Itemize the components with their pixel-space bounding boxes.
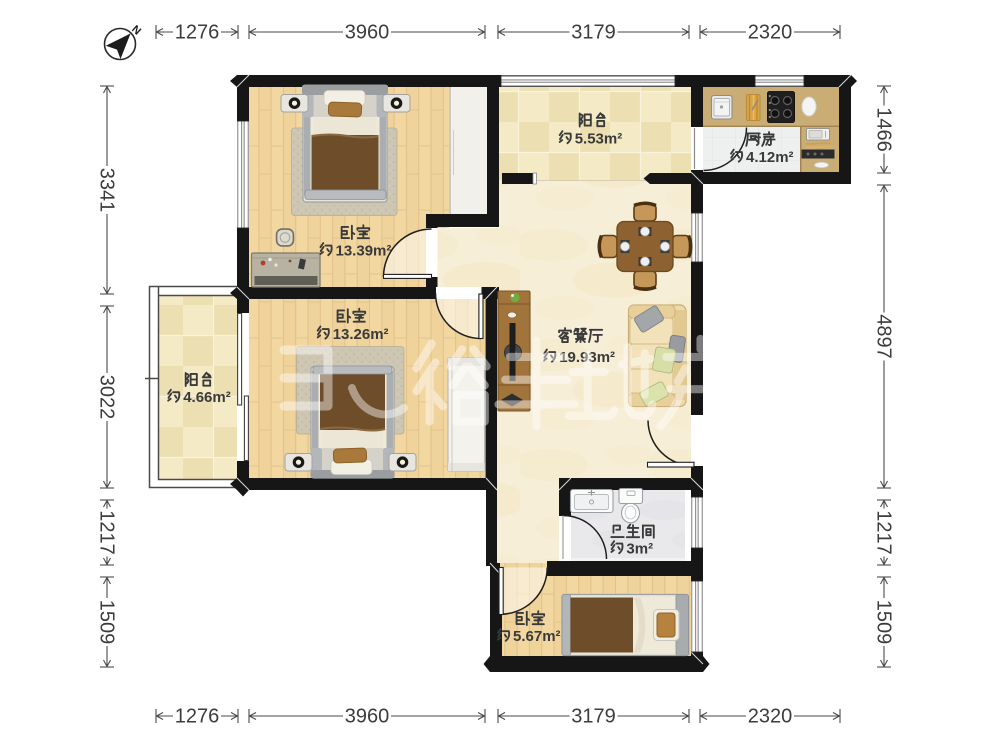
- svg-text:1466: 1466: [873, 107, 895, 152]
- svg-text:3m²: 3m²: [626, 541, 653, 558]
- svg-text:3960: 3960: [345, 706, 390, 728]
- svg-text:2320: 2320: [748, 22, 793, 44]
- svg-text:5.53m²: 5.53m²: [575, 131, 623, 148]
- svg-text:1276: 1276: [175, 22, 220, 44]
- svg-text:4.66m²: 4.66m²: [183, 389, 231, 406]
- svg-text:13.39m²: 13.39m²: [336, 243, 392, 260]
- svg-text:1509: 1509: [96, 600, 118, 645]
- svg-text:1276: 1276: [175, 706, 220, 728]
- svg-text:3179: 3179: [571, 22, 616, 44]
- svg-text:5.67m²: 5.67m²: [513, 628, 561, 645]
- svg-text:3022: 3022: [96, 375, 118, 420]
- svg-text:4897: 4897: [873, 314, 895, 359]
- svg-text:4.12m²: 4.12m²: [746, 149, 794, 166]
- svg-text:1509: 1509: [873, 600, 895, 645]
- svg-text:3179: 3179: [571, 706, 616, 728]
- svg-text:13.26m²: 13.26m²: [333, 326, 389, 343]
- svg-text:1217: 1217: [96, 510, 118, 555]
- svg-text:3341: 3341: [96, 168, 118, 213]
- svg-text:2320: 2320: [748, 706, 793, 728]
- svg-text:1217: 1217: [873, 510, 895, 555]
- svg-text:3960: 3960: [345, 22, 390, 44]
